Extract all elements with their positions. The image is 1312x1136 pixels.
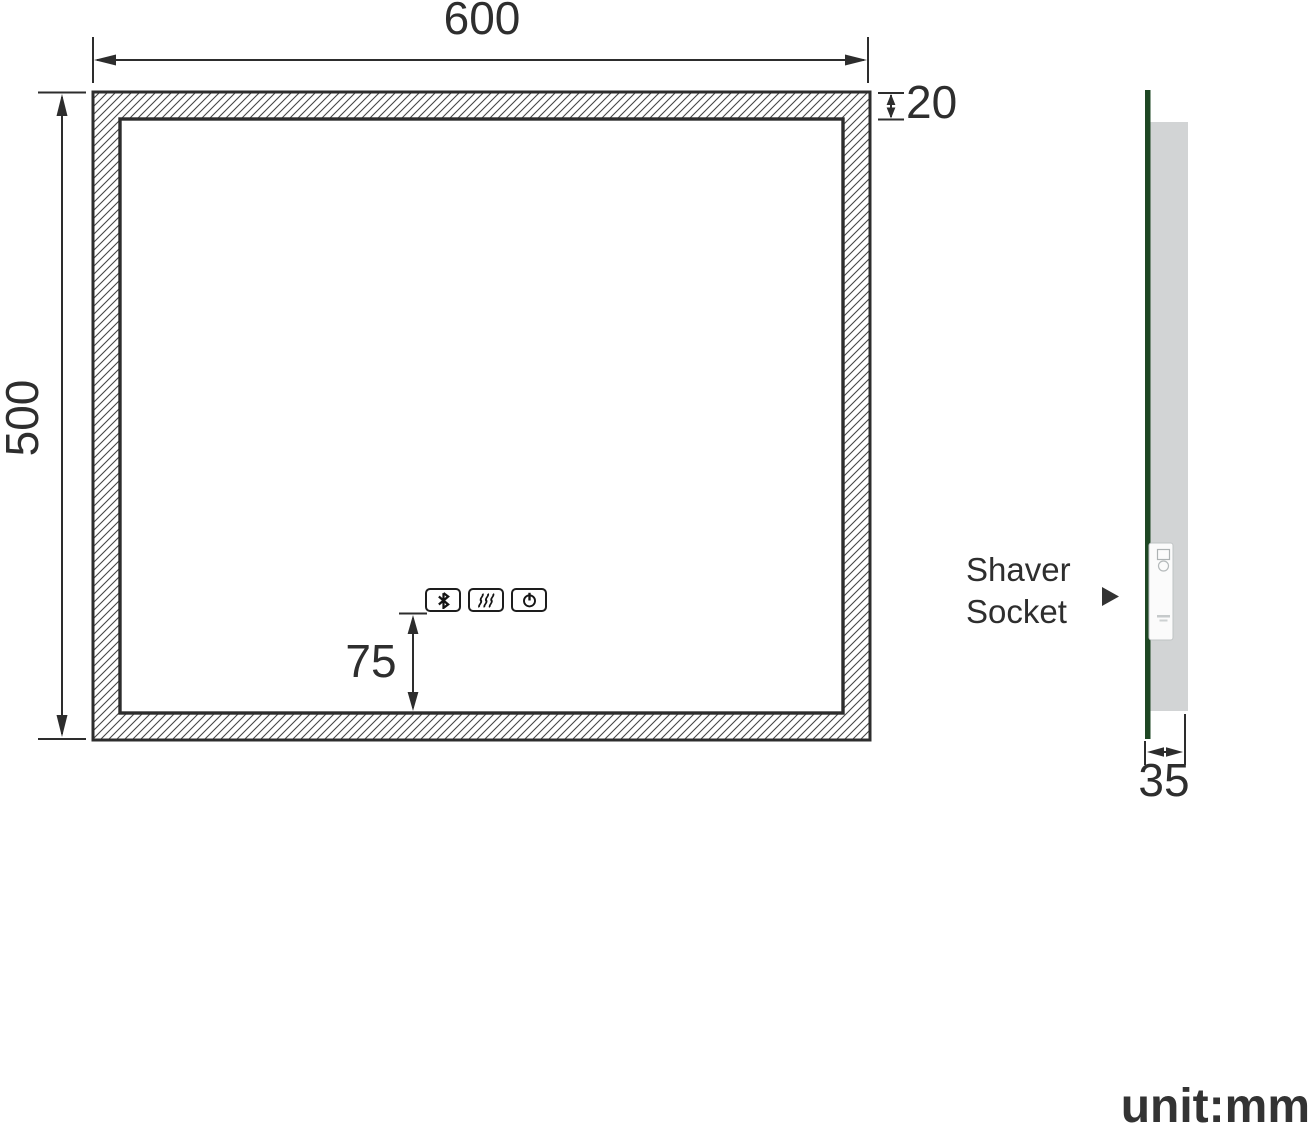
shaver-socket-pointer-arrow xyxy=(1102,587,1119,606)
defogger-icon xyxy=(477,593,495,608)
mirror-glass-edge xyxy=(1145,90,1151,739)
side-view xyxy=(1102,90,1188,739)
controls-offset-dimension-label: 75 xyxy=(338,638,404,684)
width-dimension-label: 600 xyxy=(436,0,528,41)
mirror-dimension-diagram: 600 500 20 75 35 Shaver Socket xyxy=(0,0,1312,1136)
shaver-socket xyxy=(1149,543,1173,640)
depth-dimension-label: 35 xyxy=(1119,757,1209,803)
bluetooth-icon xyxy=(437,592,450,609)
dim-frame-thickness-20 xyxy=(878,93,904,120)
touch-controls xyxy=(425,588,547,612)
frame-thickness-dimension-label: 20 xyxy=(906,79,957,125)
power-button xyxy=(511,588,547,612)
mirror-surface xyxy=(120,119,843,713)
power-icon xyxy=(522,592,537,608)
shaver-socket-label: Shaver Socket xyxy=(966,549,1100,633)
front-view xyxy=(93,92,870,740)
height-dimension-label: 500 xyxy=(0,373,45,463)
defogger-button xyxy=(468,588,504,612)
technical-drawing xyxy=(0,0,1312,1136)
unit-note: unit:mm xyxy=(1121,1083,1310,1131)
bluetooth-button xyxy=(425,588,461,612)
